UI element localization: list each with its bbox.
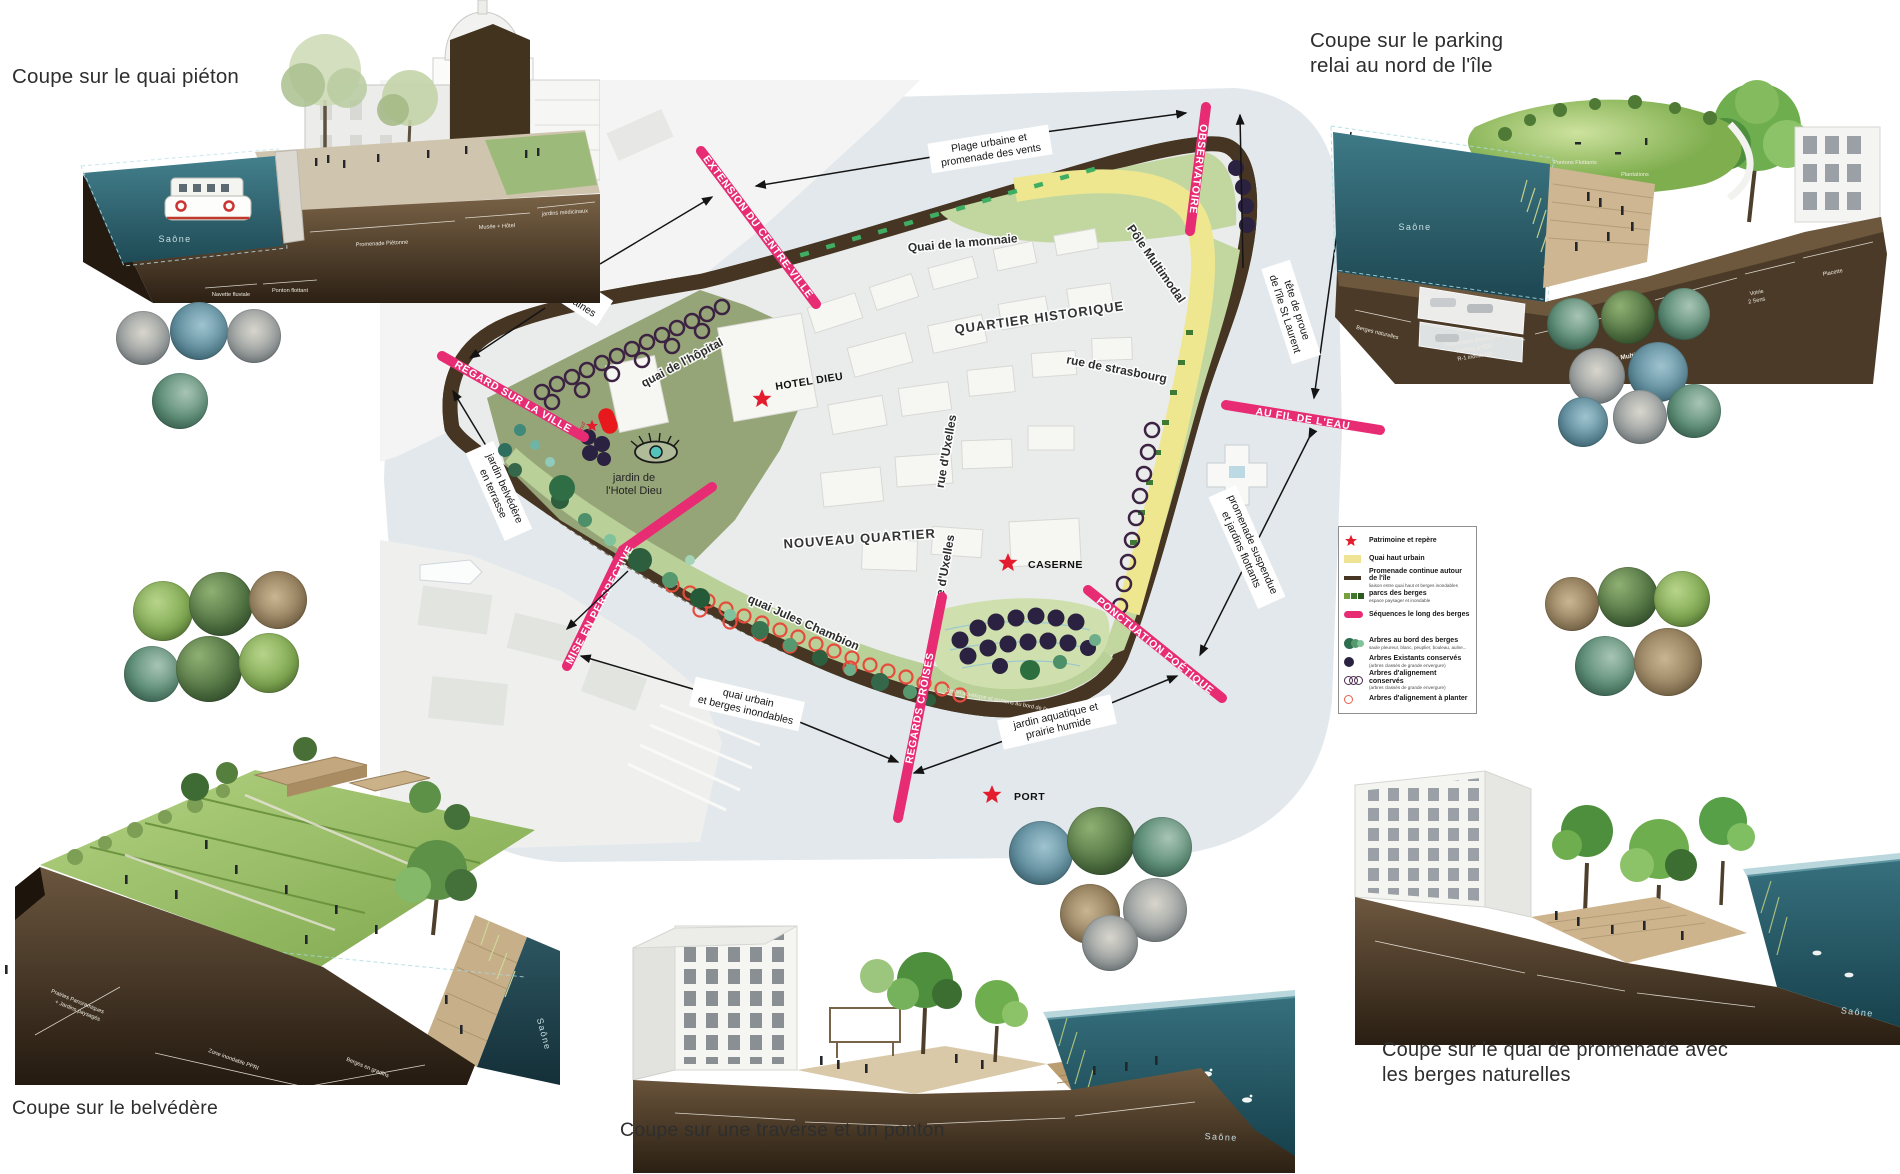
legend-sub: saule pleureur, blanc, peuplier, bouleau… bbox=[1369, 645, 1471, 650]
photo-circle bbox=[1634, 628, 1702, 696]
title-line: les berges naturelles bbox=[1382, 1063, 1728, 1088]
legend-sub: (arbres classés de grande envergure) bbox=[1369, 685, 1471, 690]
rendering-belvedere: Prairies Panoramiques + Jardins paysagés… bbox=[5, 735, 560, 1085]
promenade-swatch bbox=[1344, 576, 1369, 580]
legend-label: Arbres au bord des berges bbox=[1369, 637, 1471, 645]
photo-circle bbox=[227, 309, 281, 363]
photo-circle bbox=[1558, 397, 1608, 447]
parcs-swatch bbox=[1344, 593, 1369, 599]
jardin-label-1: jardin de bbox=[612, 472, 655, 484]
photo-circle bbox=[1658, 288, 1710, 340]
legend-label: Promenade continue autour de l'île bbox=[1369, 568, 1471, 583]
presentation-board: Quai de la monnaie quai de l'hôpital rue… bbox=[0, 0, 1900, 1174]
rendering-quai-promenade: Saône bbox=[1325, 745, 1900, 1045]
legend-label: parcs des berges bbox=[1369, 590, 1471, 598]
title-line: relai au nord de l'île bbox=[1310, 53, 1503, 78]
sequences-swatch bbox=[1344, 611, 1369, 618]
legend-sub: (arbres classés de grande envergure) bbox=[1369, 663, 1471, 668]
label-pontons-flottants: Pontons Flottants bbox=[1553, 160, 1597, 166]
label-ponton: Ponton flottant bbox=[272, 288, 309, 294]
building bbox=[1795, 127, 1880, 222]
photo-circle bbox=[1569, 348, 1625, 404]
photo-circle bbox=[189, 572, 253, 636]
photo-circle bbox=[1082, 915, 1138, 971]
photo-circle bbox=[1067, 807, 1135, 875]
photo-circle bbox=[116, 311, 170, 365]
photo-circle bbox=[1613, 390, 1667, 444]
legend-item-promenade: Promenade continue autour de l'îleliaiso… bbox=[1344, 569, 1471, 586]
building-side bbox=[633, 928, 675, 1080]
photo-circle bbox=[1575, 636, 1635, 696]
legend-label: Arbres Existants conservés bbox=[1369, 655, 1471, 663]
boat-outline bbox=[420, 560, 482, 584]
legend-sub: espace paysager et inondable bbox=[1369, 598, 1471, 603]
photo-circle bbox=[176, 636, 242, 702]
legend-item-arbres-existants: Arbres Existants conservés(arbres classé… bbox=[1344, 654, 1471, 670]
photo-circle bbox=[1667, 384, 1721, 438]
legend-item-sequences: Séquences le long des berges bbox=[1344, 606, 1471, 622]
title-line: Coupe sur le parking bbox=[1310, 28, 1503, 53]
star-icon bbox=[1344, 534, 1369, 548]
arbres-berges-icon bbox=[1344, 638, 1369, 649]
river-shuttle-boat bbox=[165, 178, 251, 220]
title-traverse-ponton: Coupe sur une traverse et un ponton bbox=[620, 1118, 945, 1143]
legend-item-quai-haut: Quai haut urbain bbox=[1344, 551, 1471, 567]
photo-circle bbox=[1009, 821, 1073, 885]
legend-label: Arbres d'alignement à planter bbox=[1369, 695, 1471, 703]
title-line: Coupe sur le quai de promenade avec bbox=[1382, 1038, 1728, 1063]
legend-item-alignement-conserves: Arbres d'alignement conservés(arbres cla… bbox=[1344, 672, 1471, 689]
photo-circle bbox=[249, 571, 307, 629]
legend-item-patrimoine: Patrimoine et repère bbox=[1344, 533, 1471, 549]
photo-circle bbox=[1601, 290, 1655, 344]
saone-label: Saône bbox=[158, 234, 191, 244]
legend: Patrimoine et repère Quai haut urbain Pr… bbox=[1338, 526, 1477, 714]
building-side bbox=[1485, 771, 1531, 917]
legend-item-arbres-berges: Arbres au bord des bergessaule pleureur,… bbox=[1344, 636, 1471, 652]
legend-sub: liaison entre quai haut et berges inonda… bbox=[1369, 583, 1471, 588]
photo-circle bbox=[124, 646, 180, 702]
photo-circle bbox=[1598, 567, 1658, 627]
photo-circle bbox=[1545, 577, 1599, 631]
title-belvedere: Coupe sur le belvédère bbox=[12, 1096, 218, 1121]
photo-circle bbox=[152, 373, 208, 429]
title-parking-relai: Coupe sur le parking relai au nord de l'… bbox=[1310, 28, 1503, 78]
saone-label: Saône bbox=[1398, 222, 1431, 232]
saone-label: Saône bbox=[1204, 1131, 1238, 1143]
legend-label: Patrimoine et repère bbox=[1369, 537, 1471, 545]
photo-circle bbox=[1132, 817, 1192, 877]
photo-circle bbox=[170, 302, 228, 360]
poi-port: PORT bbox=[1014, 791, 1045, 803]
quai-haut-swatch bbox=[1344, 555, 1369, 563]
photo-circle bbox=[1547, 298, 1599, 350]
photo-circle bbox=[239, 633, 299, 693]
legend-item-parcs: parcs des bergesespace paysager et inond… bbox=[1344, 588, 1471, 604]
label-plantations: Plantations bbox=[1621, 172, 1649, 178]
arbres-existants-icon bbox=[1344, 657, 1369, 667]
legend-label: Arbres d'alignement conservés bbox=[1369, 670, 1471, 685]
poi-caserne: CASERNE bbox=[1028, 559, 1083, 571]
photo-circle bbox=[1654, 571, 1710, 627]
cross-building-pool bbox=[1229, 466, 1245, 478]
photo-circle bbox=[133, 581, 193, 641]
rendering-quai-pieton: Saône Promenade Piétonne Musée + Hôtel j… bbox=[25, 0, 600, 305]
label-navette: Navette fluviale bbox=[212, 292, 250, 298]
alignement-planter-icon bbox=[1344, 695, 1369, 704]
jardin-label-2: l'Hotel Dieu bbox=[606, 485, 662, 497]
legend-label: Quai haut urbain bbox=[1369, 555, 1471, 563]
title-quai-pieton: Coupe sur le quai piéton bbox=[12, 64, 239, 89]
alignement-conserves-icon bbox=[1344, 676, 1369, 685]
legend-label: Séquences le long des berges bbox=[1369, 611, 1471, 619]
legend-item-alignement-planter: Arbres d'alignement à planter bbox=[1344, 691, 1471, 707]
title-quai-promenade: Coupe sur le quai de promenade avec les … bbox=[1382, 1038, 1728, 1088]
